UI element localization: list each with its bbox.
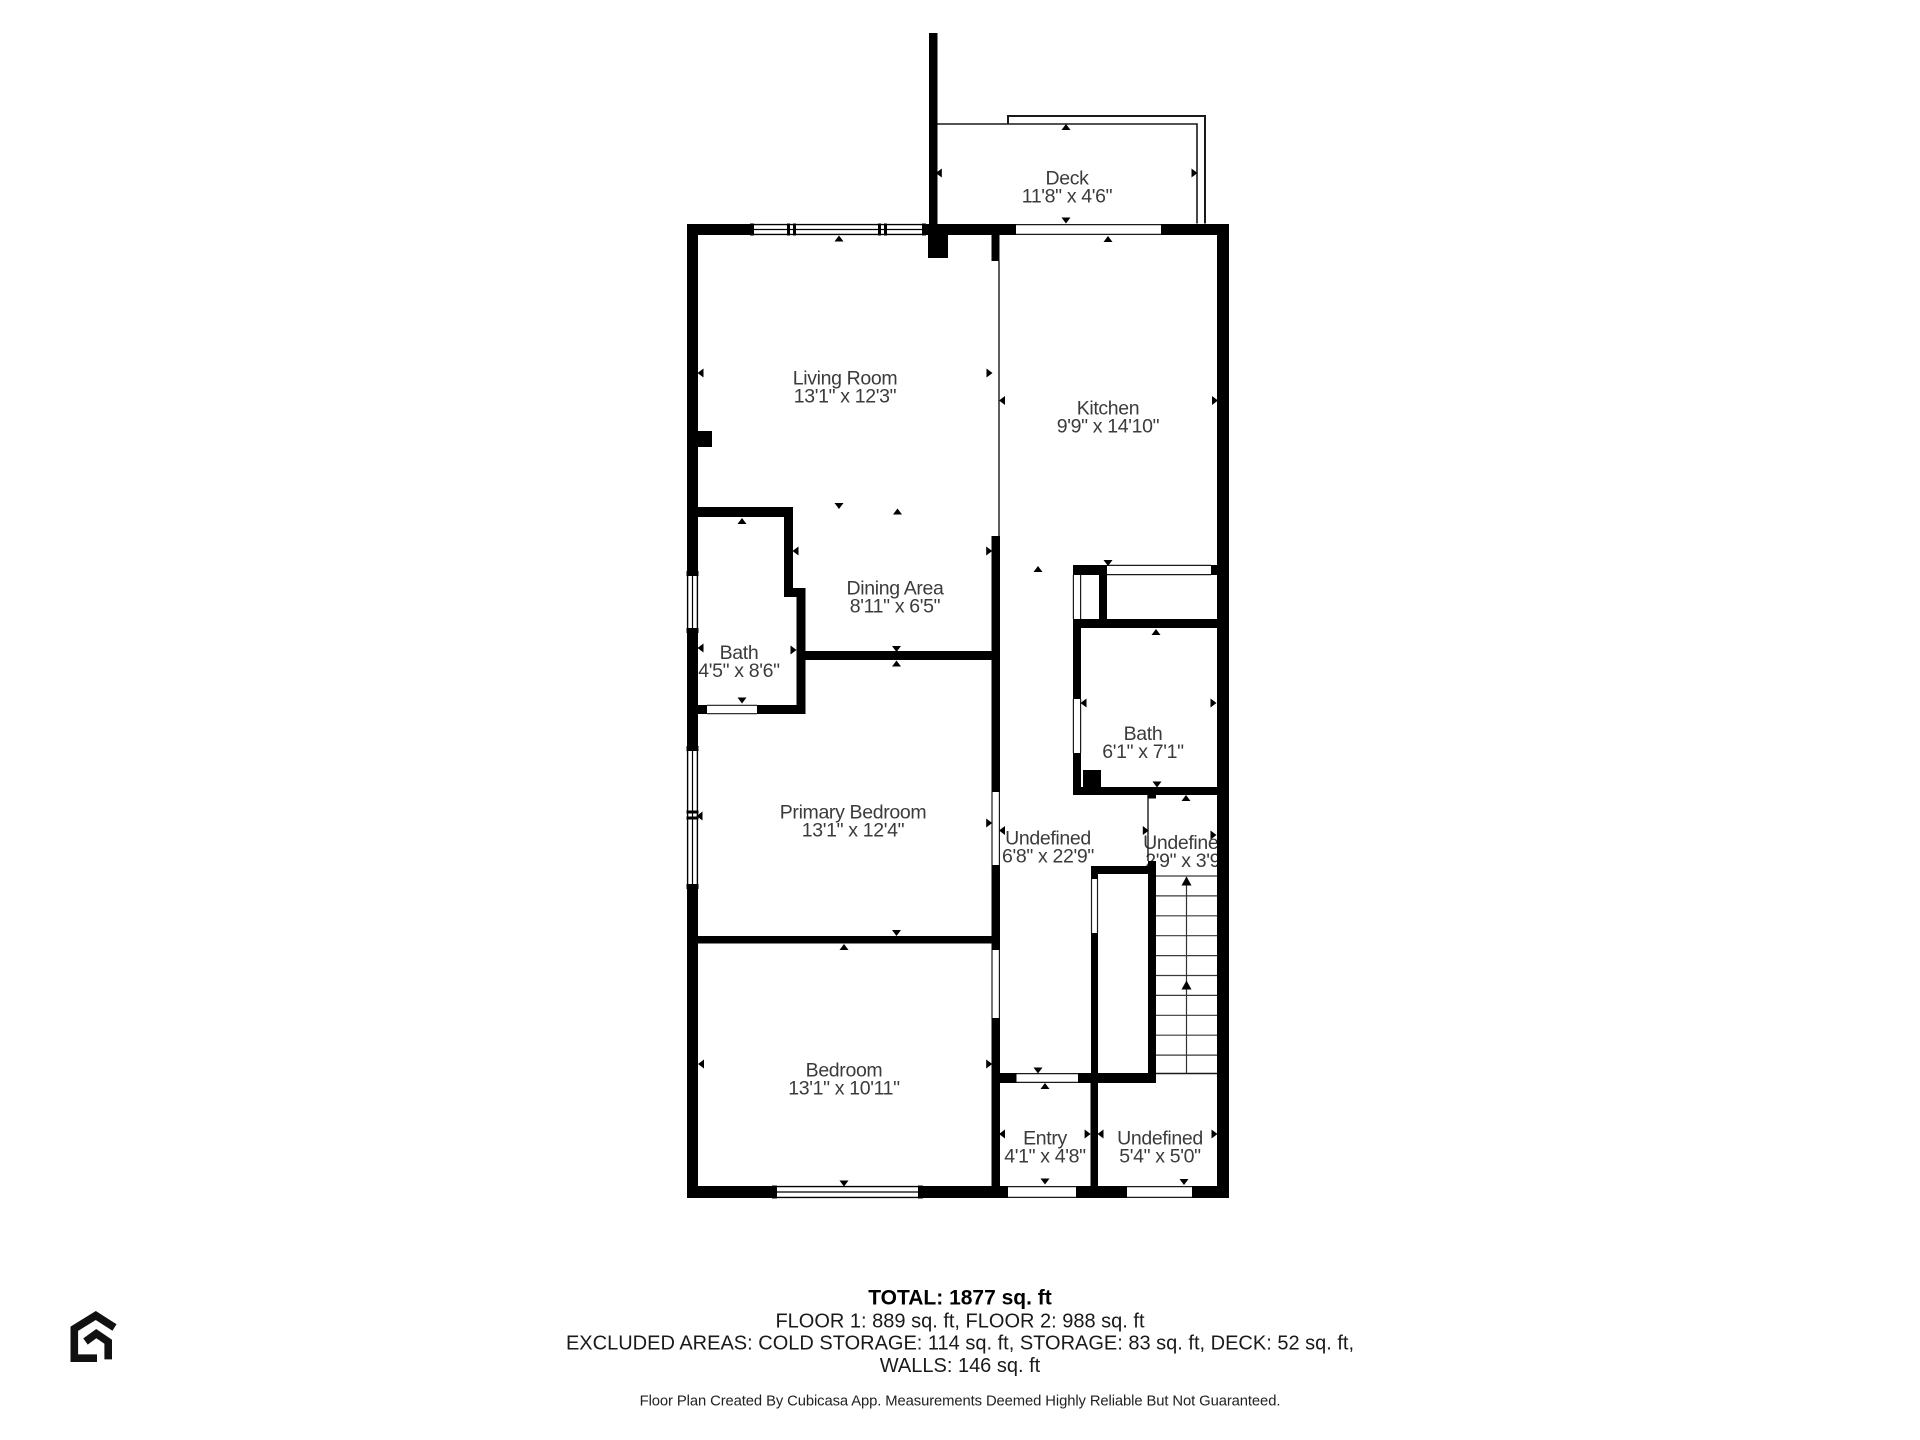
svg-text:2'9" x 3'9": 2'9" x 3'9" xyxy=(1145,850,1227,872)
svg-text:4'5" x 8'6": 4'5" x 8'6" xyxy=(698,660,780,682)
svg-text:11'8" x 4'6": 11'8" x 4'6" xyxy=(1022,186,1113,208)
svg-text:6'1" x 7'1": 6'1" x 7'1" xyxy=(1102,741,1184,763)
svg-text:Floor Plan Created By Cubicasa: Floor Plan Created By Cubicasa App. Meas… xyxy=(640,1394,1281,1410)
svg-text:4'1" x 4'8": 4'1" x 4'8" xyxy=(1004,1146,1086,1168)
svg-text:9'9" x 14'10": 9'9" x 14'10" xyxy=(1057,416,1160,438)
svg-text:13'1" x 12'3": 13'1" x 12'3" xyxy=(794,385,897,407)
svg-text:8'11" x 6'5": 8'11" x 6'5" xyxy=(850,596,941,618)
svg-text:EXCLUDED AREAS: COLD STORAGE:: EXCLUDED AREAS: COLD STORAGE: 114 sq. ft… xyxy=(566,1333,1354,1355)
svg-text:TOTAL: 1877 sq. ft: TOTAL: 1877 sq. ft xyxy=(868,1286,1052,1309)
svg-text:FLOOR 1: 889 sq. ft, FLOOR 2:: FLOOR 1: 889 sq. ft, FLOOR 2: 988 sq. ft xyxy=(775,1311,1144,1333)
svg-text:WALLS: 146 sq. ft: WALLS: 146 sq. ft xyxy=(880,1355,1041,1377)
svg-text:13'1" x 12'4": 13'1" x 12'4" xyxy=(802,820,905,842)
svg-text:13'1" x 10'11": 13'1" x 10'11" xyxy=(788,1078,900,1100)
svg-text:5'4" x 5'0": 5'4" x 5'0" xyxy=(1119,1146,1201,1168)
svg-text:6'8" x 22'9": 6'8" x 22'9" xyxy=(1002,845,1094,867)
